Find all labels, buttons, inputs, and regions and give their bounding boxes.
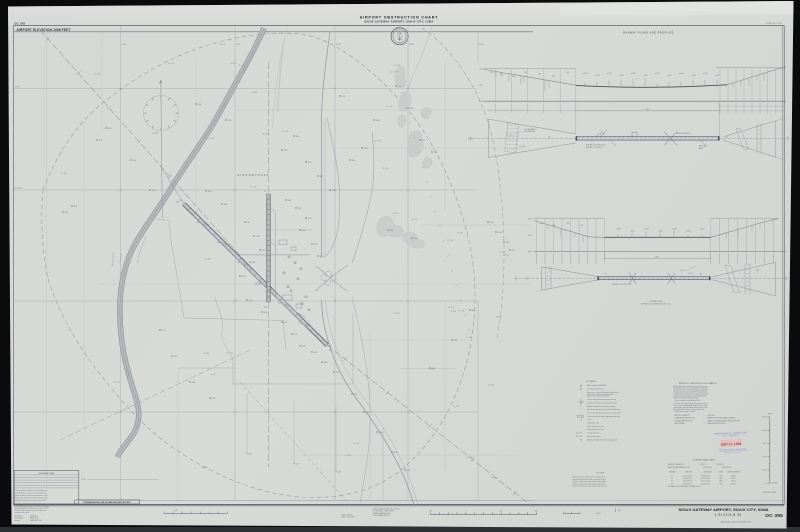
svg-text:1120: 1120: [162, 330, 166, 332]
svg-text:1183: 1183: [459, 233, 463, 235]
svg-text:o 1107: o 1107: [667, 75, 672, 77]
svg-text:42°22'30": 42°22'30": [15, 188, 22, 190]
svg-text:1095: 1095: [719, 481, 723, 483]
svg-text:1103: 1103: [397, 65, 401, 67]
svg-text:LONGITUDE: LONGITUDE: [703, 472, 712, 474]
svg-text:96°23': 96°23': [122, 44, 127, 46]
svg-text:6000: 6000: [763, 456, 767, 458]
svg-text:1136: 1136: [512, 76, 515, 78]
svg-text:35: 35: [671, 483, 673, 485]
svg-text:1057: 1057: [211, 138, 215, 140]
svg-text:1 INCH = 3443 FEET: 1 INCH = 3443 FEET: [341, 517, 355, 519]
svg-text:FEET: FEET: [618, 510, 622, 512]
svg-text:1098 TD: 1098 TD: [576, 436, 583, 438]
svg-text:1097: 1097: [719, 478, 723, 480]
svg-text:42 23 47.125: 42 23 47.125: [683, 478, 692, 480]
svg-text:1224: 1224: [454, 340, 458, 342]
svg-text:1097.4: 1097.4: [731, 483, 736, 485]
svg-text:1096.2: 1096.2: [731, 478, 736, 480]
svg-text:96 23 02.413: 96 23 02.413: [722, 467, 731, 469]
svg-text:1150: 1150: [512, 250, 516, 252]
svg-text:1063: 1063: [97, 74, 101, 76]
svg-text:1084: 1084: [522, 146, 526, 148]
svg-text:1091.8: 1091.8: [731, 476, 736, 478]
svg-text:1000 0: 1000 0: [174, 510, 178, 512]
svg-text:1089: 1089: [207, 259, 211, 261]
svg-text:6599': 6599': [655, 256, 660, 258]
svg-text:1142: 1142: [540, 223, 543, 225]
svg-text:1204: 1204: [212, 398, 216, 400]
svg-text:1160: 1160: [352, 160, 356, 162]
svg-text:1105: 1105: [206, 353, 210, 355]
svg-text:96°24': 96°24': [479, 44, 484, 46]
svg-text:96°21': 96°21': [236, 44, 241, 46]
svg-text:1061: 1061: [491, 385, 495, 387]
svg-text:o 1120: o 1120: [686, 231, 691, 233]
svg-text:o 1107: o 1107: [700, 229, 705, 231]
svg-text:1066: 1066: [356, 443, 360, 445]
svg-text:1000: 1000: [479, 101, 483, 103]
svg-text:1141: 1141: [469, 337, 473, 339]
svg-text:1145: 1145: [385, 168, 389, 170]
svg-text:1083: 1083: [338, 471, 342, 473]
svg-text:1100: 1100: [278, 302, 282, 304]
svg-text:0: 0: [765, 483, 766, 485]
svg-text:1051: 1051: [171, 63, 175, 65]
svg-text:o 1121: o 1121: [643, 75, 648, 77]
svg-text:ULTIMATE PLAN: ULTIMATE PLAN: [650, 300, 664, 303]
svg-text:1096: 1096: [252, 262, 256, 264]
svg-text:1098: 1098: [217, 242, 221, 244]
svg-text:AIRPORT OBSTRUCTION CHART: AIRPORT OBSTRUCTION CHART: [360, 16, 439, 20]
svg-text:17: 17: [671, 481, 673, 483]
svg-text:1030: 1030: [302, 230, 306, 232]
svg-text:1169: 1169: [155, 133, 159, 135]
svg-text:o 1099: o 1099: [644, 229, 649, 231]
svg-text:42°25': 42°25': [15, 87, 20, 89]
svg-text:1088: 1088: [364, 148, 368, 150]
svg-text:o 1108: o 1108: [631, 73, 636, 75]
svg-text:1194: 1194: [258, 284, 262, 286]
svg-text:1001: 1001: [247, 222, 251, 224]
svg-text:1 SI 41/3.B 39: 1 SI 41/3.B 39: [714, 513, 741, 517]
svg-text:1116: 1116: [241, 65, 244, 67]
svg-text:1114: 1114: [414, 219, 417, 221]
svg-text:1172: 1172: [229, 353, 233, 355]
svg-text:17: 17: [604, 274, 606, 276]
svg-text:1100: 1100: [479, 85, 483, 87]
svg-text:1/2 MILE: 1/2 MILE: [772, 483, 778, 485]
svg-text:1205: 1205: [379, 432, 383, 434]
svg-text:1014: 1014: [284, 150, 288, 152]
svg-text:1205: 1205: [407, 470, 411, 472]
svg-text:1087: 1087: [498, 317, 502, 319]
svg-text:1120: 1120: [410, 108, 414, 110]
svg-text:7889': 7889': [645, 109, 650, 111]
svg-text:o 1156: o 1156: [688, 273, 693, 275]
svg-text:1090: 1090: [431, 369, 435, 371]
svg-text:1200: 1200: [253, 186, 257, 188]
svg-text:1107: 1107: [206, 225, 210, 227]
svg-text:A I R P O R T P L A N: A I R P O R T P L A N: [238, 173, 269, 177]
svg-text:1092: 1092: [490, 222, 494, 224]
svg-text:1002: 1002: [288, 200, 292, 202]
svg-text:1093: 1093: [461, 311, 465, 313]
svg-text:96°25': 96°25': [336, 44, 341, 46]
svg-text:15000: 15000: [762, 417, 766, 419]
svg-text:42 23 47.310: 42 23 47.310: [683, 483, 692, 485]
svg-text:42 24 26: 42 24 26: [700, 464, 706, 466]
svg-text:1015: 1015: [208, 191, 212, 193]
svg-text:o 1103: o 1103: [672, 229, 677, 231]
svg-text:1070: 1070: [152, 190, 156, 192]
svg-text:OC 395: OC 395: [765, 513, 783, 519]
svg-text:1192: 1192: [74, 206, 78, 208]
svg-text:1180: 1180: [332, 190, 336, 192]
svg-text:Levee: Levee: [587, 419, 591, 421]
svg-text:1176: 1176: [294, 334, 298, 336]
svg-text:1110: 1110: [394, 452, 398, 454]
svg-text:96 22 33.125: 96 22 33.125: [701, 478, 710, 480]
svg-text:1125: 1125: [502, 252, 506, 254]
svg-text:1180: 1180: [284, 322, 288, 324]
svg-text:1084: 1084: [366, 412, 370, 414]
svg-text:13: 13: [548, 137, 550, 139]
svg-text:o 1141: o 1141: [680, 270, 685, 272]
svg-text:1199: 1199: [99, 140, 103, 142]
svg-text:1205: 1205: [450, 240, 454, 242]
svg-text:o 1116: o 1116: [658, 231, 663, 233]
svg-text:1139: 1139: [394, 72, 398, 74]
svg-text:1106: 1106: [108, 128, 112, 130]
svg-text:1081: 1081: [494, 477, 498, 479]
svg-text:1144: 1144: [320, 176, 324, 178]
svg-text:1095: 1095: [247, 265, 251, 267]
svg-text:o 1120: o 1120: [679, 73, 684, 75]
svg-text:1098: 1098: [719, 483, 723, 485]
svg-text:1152: 1152: [228, 120, 232, 122]
svg-text:o 1095: o 1095: [616, 229, 621, 231]
svg-text:31: 31: [671, 478, 673, 480]
svg-text:1186: 1186: [265, 134, 269, 136]
svg-text:1158: 1158: [302, 346, 306, 348]
svg-text:x 1098: x 1098: [600, 133, 605, 135]
svg-text:1198: 1198: [451, 307, 455, 309]
svg-text:1066: 1066: [285, 131, 289, 133]
svg-text:~: ~: [581, 423, 582, 425]
svg-text:1129: 1129: [524, 72, 527, 74]
svg-text:1159: 1159: [506, 255, 510, 257]
svg-text:=: =: [581, 412, 582, 414]
svg-text:1200: 1200: [117, 382, 121, 384]
svg-text:1194: 1194: [198, 104, 202, 106]
svg-text:1228: 1228: [414, 238, 418, 240]
svg-text:1094.6: 1094.6: [731, 481, 736, 483]
svg-text:RUNWAY PLANS AND PROFILES: RUNWAY PLANS AND PROFILES: [623, 31, 674, 34]
svg-text:1186: 1186: [390, 230, 394, 232]
svg-text:1100: 1100: [528, 235, 532, 237]
svg-text:1092: 1092: [719, 476, 723, 478]
svg-text:1076: 1076: [233, 63, 237, 65]
svg-text:1200: 1200: [479, 68, 483, 70]
svg-text:1010: 1010: [262, 250, 266, 252]
svg-text:3000: 3000: [763, 470, 767, 472]
svg-text:Aircraft Obstruction Chart: Aircraft Obstruction Chart Series OC: [720, 520, 752, 523]
svg-text:1 MILE: 1 MILE: [596, 513, 601, 515]
svg-text:1034: 1034: [320, 256, 324, 258]
svg-text:42 24 09.613: 42 24 09.613: [703, 467, 712, 469]
svg-text:1185: 1185: [469, 457, 473, 459]
svg-text:8000: 8000: [535, 511, 538, 513]
svg-text:SIOUX GATEWAY AIRPORT, SIOUX: SIOUX GATEWAY AIRPORT, SIOUX CITY, IOWA: [364, 20, 433, 24]
svg-text:o 1106: o 1106: [703, 73, 708, 75]
svg-text:12000: 12000: [762, 430, 766, 432]
svg-text:1098 FEET: 1098 FEET: [708, 415, 715, 417]
svg-text:1200: 1200: [528, 219, 532, 221]
svg-text:1070: 1070: [222, 44, 226, 46]
svg-text:4000: 4000: [500, 511, 503, 513]
svg-text:NOTE: NOTE: [82, 479, 86, 481]
svg-text:96 22 55.310: 96 22 55.310: [701, 483, 710, 485]
svg-text:42 24 29.785: 42 24 29.785: [683, 481, 692, 483]
svg-text:1207: 1207: [65, 212, 69, 214]
svg-text:1090: 1090: [314, 352, 318, 354]
svg-text:1183: 1183: [254, 92, 258, 94]
svg-text:1133: 1133: [552, 225, 555, 227]
svg-text:ELEV: ELEV: [719, 472, 723, 474]
svg-text:1108: 1108: [566, 72, 569, 74]
svg-text:1016: 1016: [256, 236, 260, 238]
svg-text:1082: 1082: [174, 356, 178, 358]
svg-text:1210: 1210: [398, 86, 402, 88]
svg-text:OPERATIONAL DATA: OPERATIONAL DATA: [693, 458, 715, 461]
svg-text:35: 35: [700, 274, 702, 276]
svg-text:96°20': 96°20': [409, 44, 414, 46]
svg-text:1160: 1160: [422, 140, 426, 142]
svg-text:1115: 1115: [552, 76, 555, 78]
svg-text:1044: 1044: [336, 372, 340, 374]
svg-text:1066: 1066: [314, 244, 318, 246]
svg-text:OC 395: OC 395: [14, 21, 25, 25]
svg-text:1114: 1114: [213, 374, 216, 376]
svg-text:1115: 1115: [296, 463, 299, 465]
svg-text:1060: 1060: [324, 362, 328, 364]
svg-text:1090: 1090: [176, 202, 180, 204]
svg-text:1122: 1122: [538, 74, 541, 76]
svg-text:1226: 1226: [354, 394, 358, 396]
svg-text:o 1096: o 1096: [583, 73, 588, 75]
svg-text:31: 31: [726, 137, 728, 139]
svg-text:o 1135: o 1135: [619, 75, 624, 77]
svg-text:1091: 1091: [328, 345, 332, 347]
svg-text:1109: 1109: [249, 300, 253, 302]
svg-text:1070: 1070: [453, 311, 457, 313]
svg-text:96 22 55.785: 96 22 55.785: [701, 481, 710, 483]
svg-text:AIRPORT OBSTRUCTION CHARTS: AIRPORT OBSTRUCTION CHARTS: [679, 382, 717, 385]
svg-text:1176: 1176: [298, 208, 302, 210]
svg-text:1066: 1066: [224, 204, 228, 206]
svg-text:o 1112: o 1112: [630, 231, 635, 233]
svg-text:1172: 1172: [395, 213, 399, 215]
svg-text:1004: 1004: [506, 242, 510, 244]
svg-text:o 1133: o 1133: [691, 75, 696, 77]
svg-text:1048: 1048: [498, 232, 502, 234]
svg-text:AIRPORT ELEVATION 1098 FEET: AIRPORT ELEVATION 1098 FEET: [17, 28, 71, 32]
svg-text:1108: 1108: [456, 406, 460, 408]
svg-text:1126: 1126: [348, 455, 352, 457]
svg-text:FEET: FEET: [768, 414, 772, 416]
svg-text:MONUMENT DATA: MONUMENT DATA: [39, 472, 55, 475]
svg-text:1140: 1140: [264, 312, 268, 314]
svg-text:1146: 1146: [308, 218, 312, 220]
svg-text:BUILDING: BUILDING: [699, 145, 707, 147]
svg-text:1190: 1190: [472, 310, 476, 312]
svg-text:NOTES: NOTES: [596, 473, 604, 475]
svg-text:o 1119: o 1119: [715, 75, 720, 77]
svg-text:1204: 1204: [389, 106, 393, 108]
svg-text:1143: 1143: [500, 74, 503, 76]
svg-text:1038: 1038: [376, 120, 380, 122]
svg-text:00 or TL: 00 or TL: [576, 433, 582, 435]
svg-text:o 1134: o 1134: [655, 73, 660, 75]
svg-text:96 23 31.064: 96 23 31.064: [701, 476, 710, 478]
svg-text:SIOUX GATEWAY AIRPORT, SIOUX: SIOUX GATEWAY AIRPORT, SIOUX CITY, IOWA: [679, 507, 769, 512]
svg-text:1208: 1208: [242, 276, 246, 278]
svg-text:1074: 1074: [396, 313, 400, 315]
svg-text:LEGEND: LEGEND: [586, 381, 596, 383]
svg-text:1115: 1115: [580, 225, 583, 227]
svg-text:1095: 1095: [204, 467, 208, 469]
svg-text:1086: 1086: [192, 382, 196, 384]
svg-text:1007: 1007: [133, 160, 137, 162]
svg-text:1105: 1105: [249, 453, 253, 455]
svg-text:JUNE 1973: JUNE 1973: [30, 516, 38, 518]
svg-text:Revised:: Revised:: [15, 520, 21, 522]
svg-text:1000: 1000: [429, 511, 432, 513]
svg-text:42 24 32.064: 42 24 32.064: [683, 476, 692, 478]
svg-text:13: 13: [671, 476, 673, 478]
svg-text:o 1122: o 1122: [607, 73, 612, 75]
svg-text:1178: 1178: [64, 173, 68, 175]
svg-text:TRANSMISSION LINE ELEVATIONS A: TRANSMISSION LINE ELEVATIONS ARE IN FEET: [83, 501, 131, 504]
svg-text:9000: 9000: [763, 443, 767, 445]
svg-text:1108: 1108: [308, 162, 312, 164]
svg-text:1124: 1124: [566, 223, 569, 225]
svg-text:o 1109: o 1109: [595, 75, 600, 77]
svg-text:1170: 1170: [434, 152, 438, 154]
svg-text:1104: 1104: [196, 222, 200, 224]
svg-text:1098 96 23: 1098 96 23: [716, 464, 724, 466]
svg-text:+: +: [581, 399, 582, 401]
svg-text:1150: 1150: [490, 72, 493, 74]
svg-text:1092: 1092: [377, 141, 381, 143]
svg-text:16250 JULY 1974: 16250 JULY 1974: [766, 23, 783, 25]
svg-text:1000: 1000: [528, 251, 532, 253]
svg-text:1178: 1178: [342, 96, 346, 98]
svg-text:1146: 1146: [296, 136, 300, 138]
